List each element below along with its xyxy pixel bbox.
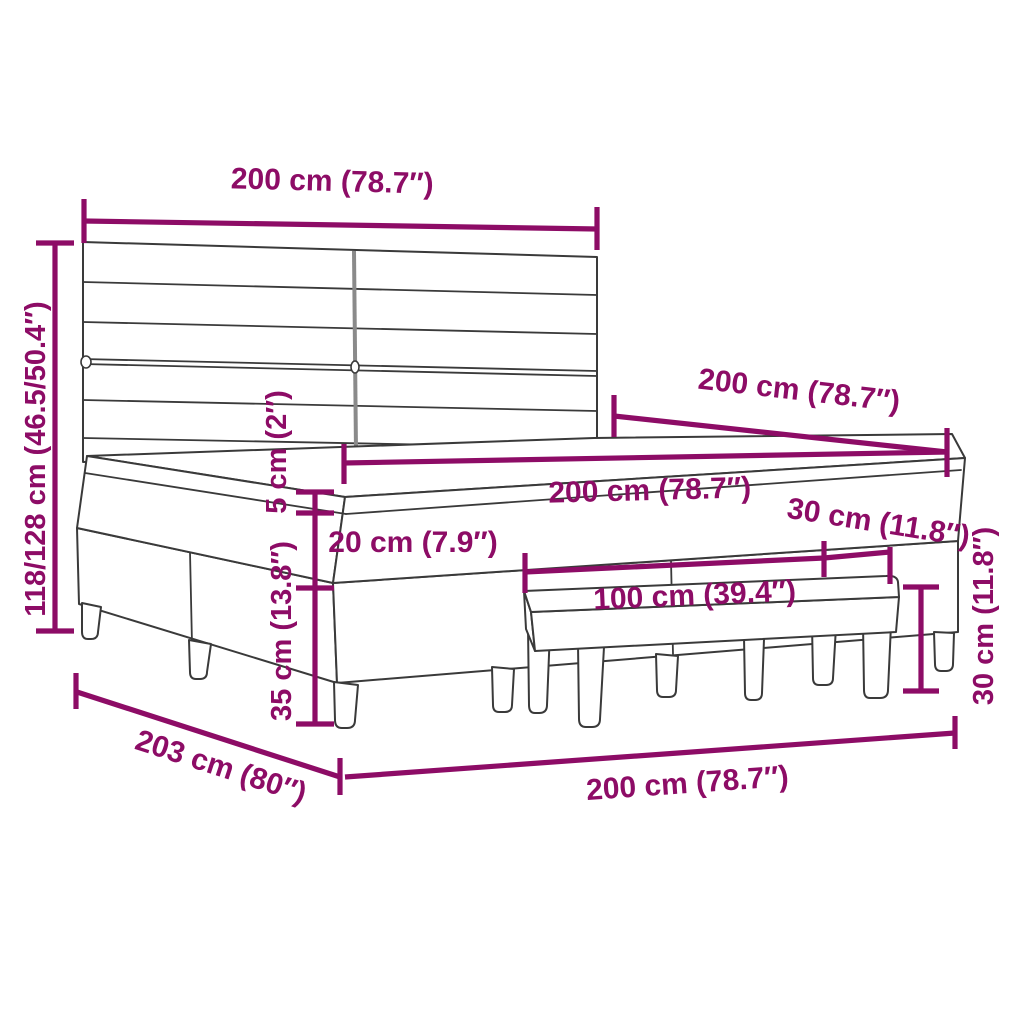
- bed-length-top-label: 200 cm (78.7″): [696, 363, 901, 419]
- dim-headboard-width: [84, 199, 597, 250]
- diagram-canvas: 200 cm (78.7″) 118/128 cm (46.5/50.4″) 2…: [0, 0, 1024, 1024]
- total-height-label: 118/128 cm (46.5/50.4″): [20, 301, 52, 616]
- headboard: [81, 242, 597, 462]
- headboard-center-seam: [354, 251, 356, 452]
- bed-width-bottom-label: 200 cm (78.7″): [585, 760, 790, 807]
- bench-height-label: 30 cm (11.8″): [968, 527, 1000, 705]
- mattress-height-label: 20 cm (7.9″): [328, 526, 497, 559]
- headboard-width-label: 200 cm (78.7″): [230, 162, 434, 200]
- base-height-label: 35 cm (13.8″): [266, 541, 298, 721]
- topper-height-label: 5 cm (2″): [261, 390, 293, 514]
- bed-drawing: [77, 242, 965, 728]
- bed-dimension-diagram: 200 cm (78.7″) 118/128 cm (46.5/50.4″) 2…: [0, 0, 1024, 1024]
- mattress-width-label: 200 cm (78.7″): [548, 471, 752, 509]
